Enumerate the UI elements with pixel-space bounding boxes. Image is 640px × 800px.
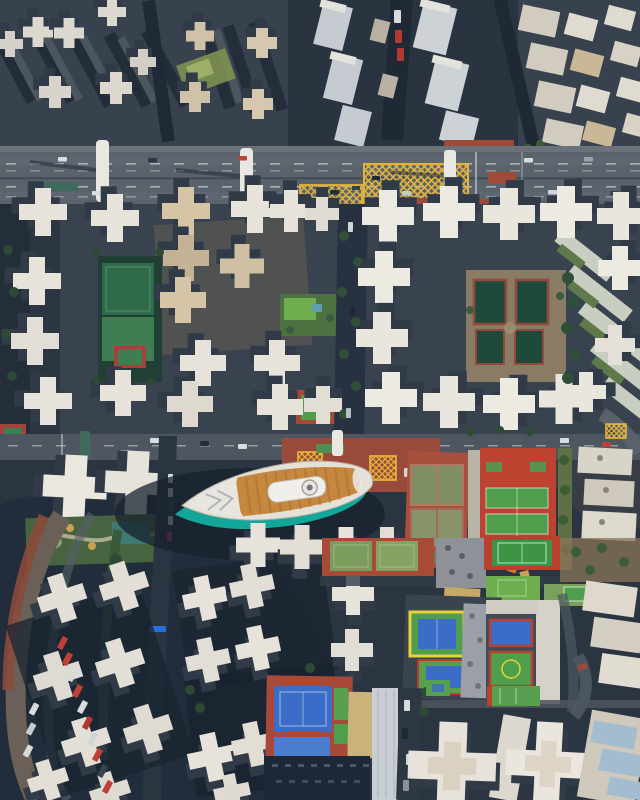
aerial-photo: [0, 0, 640, 800]
aerial-photo-canvas: [0, 0, 640, 800]
